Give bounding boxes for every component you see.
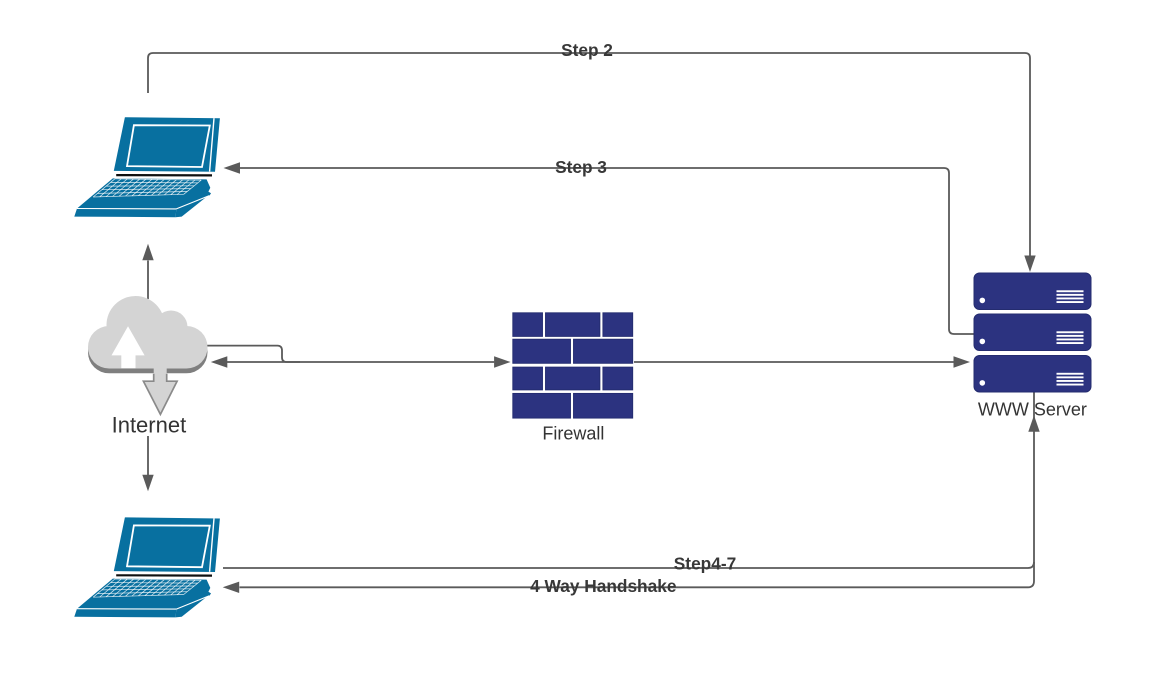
svg-text:WWW Server: WWW Server bbox=[978, 400, 1087, 420]
svg-text:Step4-7: Step4-7 bbox=[674, 554, 736, 574]
svg-text:Firewall: Firewall bbox=[542, 424, 604, 444]
svg-text:Step 2: Step 2 bbox=[561, 40, 613, 60]
svg-text:Internet: Internet bbox=[112, 413, 187, 438]
svg-text:Step 3: Step 3 bbox=[555, 157, 607, 177]
svg-text:4 Way Handshake: 4 Way Handshake bbox=[530, 576, 677, 596]
